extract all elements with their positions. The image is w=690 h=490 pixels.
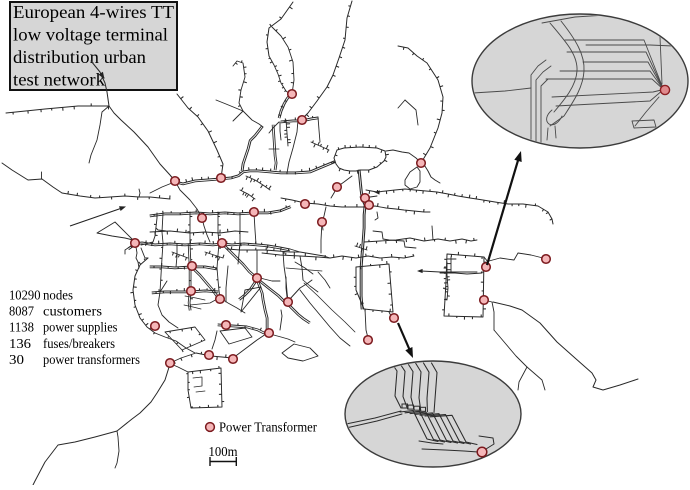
svg-text:30: 30 bbox=[9, 352, 24, 367]
svg-text:power supplies: power supplies bbox=[43, 320, 118, 335]
svg-text:10290: 10290 bbox=[9, 288, 41, 303]
svg-text:test network: test network bbox=[13, 70, 105, 90]
svg-text:100m: 100m bbox=[209, 445, 238, 460]
svg-text:136: 136 bbox=[9, 336, 31, 351]
svg-text:European 4-wires TT: European 4-wires TT bbox=[13, 2, 174, 22]
svg-text:customers: customers bbox=[43, 304, 102, 319]
svg-text:fuses/breakers: fuses/breakers bbox=[43, 336, 115, 351]
svg-text:nodes: nodes bbox=[43, 288, 73, 303]
svg-text:8087: 8087 bbox=[9, 304, 34, 319]
svg-text:distribution urban: distribution urban bbox=[13, 47, 146, 67]
svg-text:low voltage terminal: low voltage terminal bbox=[13, 25, 168, 45]
svg-text:Power Transformer: Power Transformer bbox=[219, 421, 317, 436]
svg-text:power transformers: power transformers bbox=[43, 352, 140, 367]
svg-text:1138: 1138 bbox=[9, 320, 34, 335]
